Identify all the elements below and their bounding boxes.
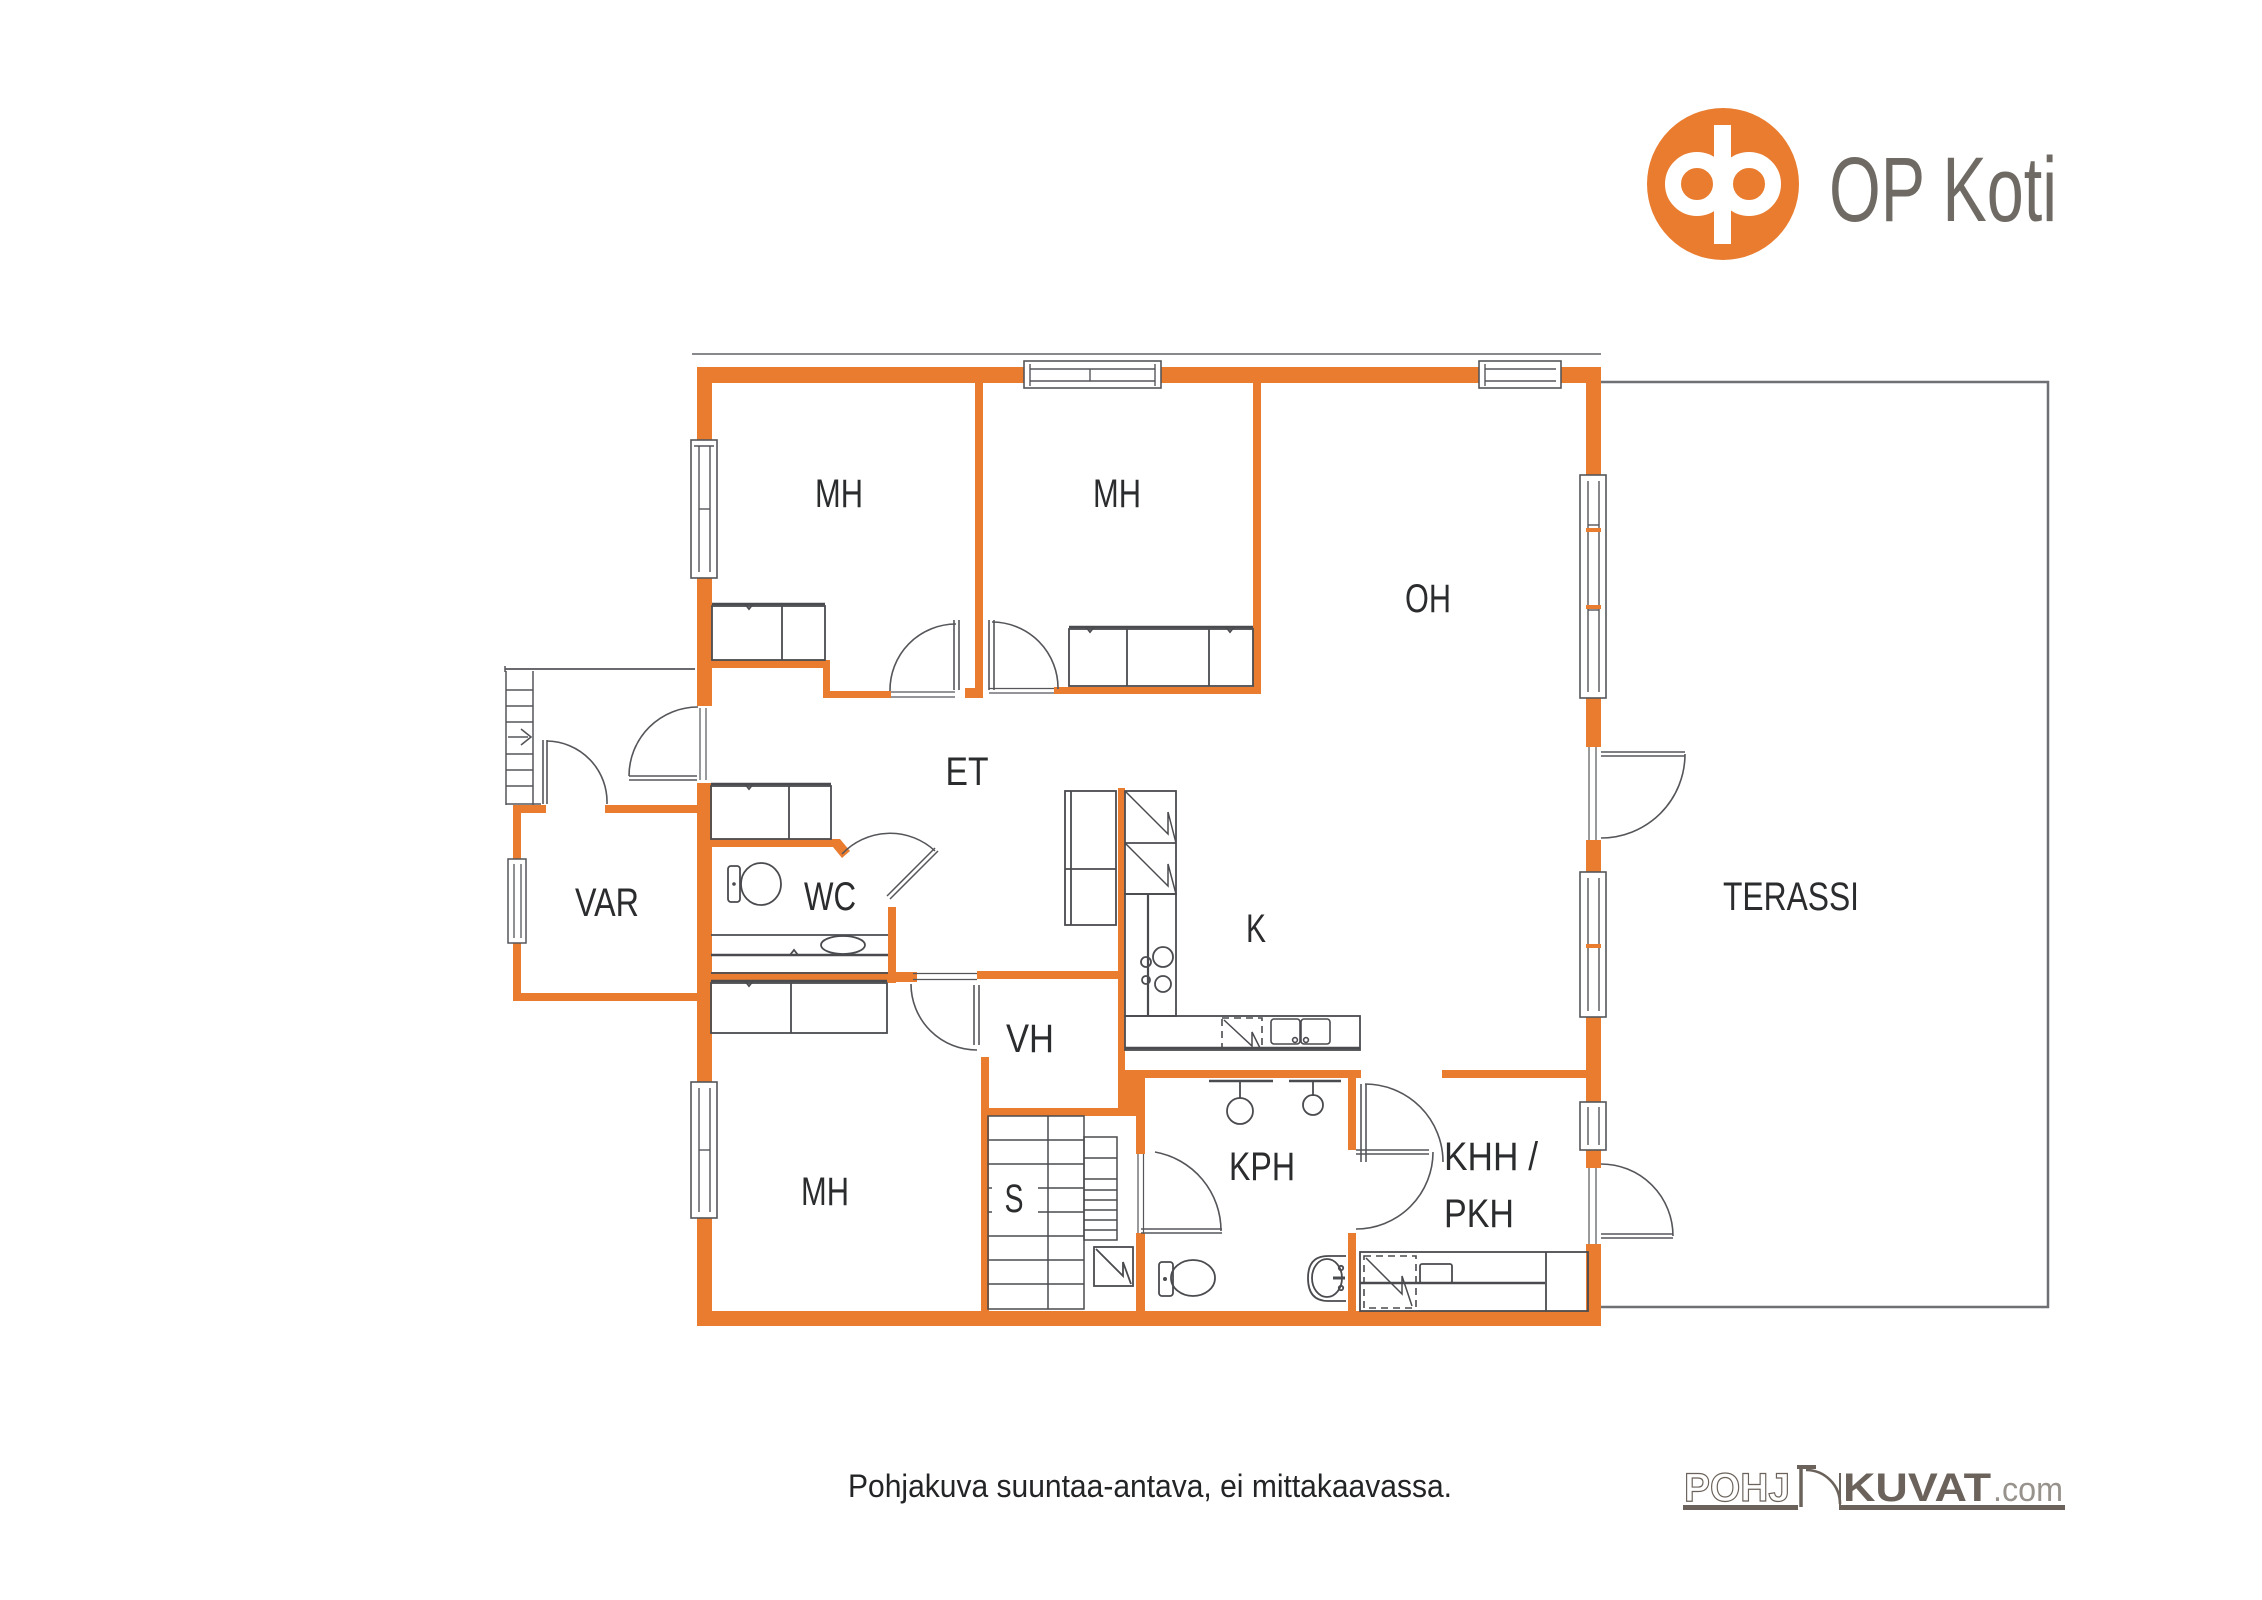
svg-text:S: S: [1005, 1177, 1024, 1221]
svg-text:Pohjakuva suuntaa-antava, ei m: Pohjakuva suuntaa-antava, ei mittakaavas…: [848, 1468, 1452, 1504]
svg-text:PKH: PKH: [1444, 1192, 1514, 1236]
svg-text:OH: OH: [1405, 577, 1451, 621]
svg-text:POHJ: POHJ: [1684, 1466, 1790, 1510]
svg-text:VAR: VAR: [575, 881, 639, 925]
svg-text:OP Koti: OP Koti: [1829, 139, 2057, 241]
svg-text:K: K: [1246, 907, 1266, 951]
svg-text:MH: MH: [1093, 472, 1141, 516]
svg-text:KPH: KPH: [1229, 1145, 1295, 1189]
svg-text:KHH /: KHH /: [1444, 1135, 1539, 1179]
svg-text:.com: .com: [1993, 1471, 2063, 1509]
svg-text:KUVAT: KUVAT: [1843, 1466, 1991, 1510]
svg-text:TERASSI: TERASSI: [1723, 875, 1859, 919]
svg-text:WC: WC: [804, 875, 856, 919]
svg-text:ET: ET: [946, 750, 989, 794]
svg-text:VH: VH: [1006, 1017, 1054, 1061]
svg-text:MH: MH: [801, 1170, 849, 1214]
svg-text:MH: MH: [815, 472, 863, 516]
